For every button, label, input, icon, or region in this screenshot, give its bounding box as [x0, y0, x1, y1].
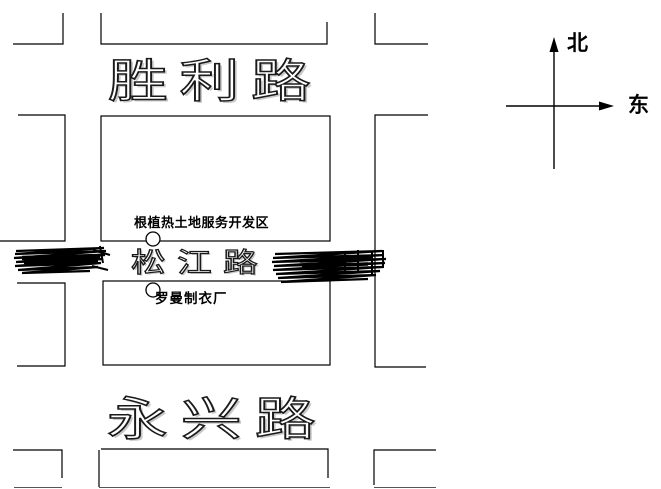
- poi-label-development-zone: 根植热土地服务开发区: [134, 216, 269, 229]
- block-top-middle: [101, 13, 327, 44]
- road-label-shengli: 胜利路: [108, 58, 323, 104]
- scribble-redaction-left: [14, 246, 110, 273]
- development-zone-marker-icon: [146, 232, 160, 246]
- block-low-left: [17, 283, 65, 366]
- compass-north-label: 北: [567, 33, 588, 54]
- compass-icon: [506, 37, 614, 169]
- block-right-tall: [375, 115, 428, 367]
- compass-east-arrowhead-icon: [599, 102, 614, 111]
- road-label-yongxing: 永兴路: [107, 396, 329, 442]
- road-label-songjiang: 松江路: [131, 250, 269, 277]
- block-bottom-left: [13, 450, 62, 478]
- block-top-left: [13, 13, 63, 44]
- map-linework: [0, 0, 661, 489]
- scribble-redaction-right: [272, 250, 386, 282]
- compass-east-label: 东: [628, 95, 649, 116]
- block-mid-left: [0, 115, 65, 241]
- block-bottom-right: [374, 450, 436, 485]
- block-bottom-middle: [101, 449, 328, 478]
- road-sketch-map: 胜利路 松江路 永兴路 根植热土地服务开发区 罗曼制衣厂 北 东: [0, 0, 661, 489]
- block-top-right: [375, 13, 428, 44]
- poi-label-garment-factory: 罗曼制衣厂: [155, 292, 228, 306]
- compass-north-arrowhead-icon: [550, 37, 559, 52]
